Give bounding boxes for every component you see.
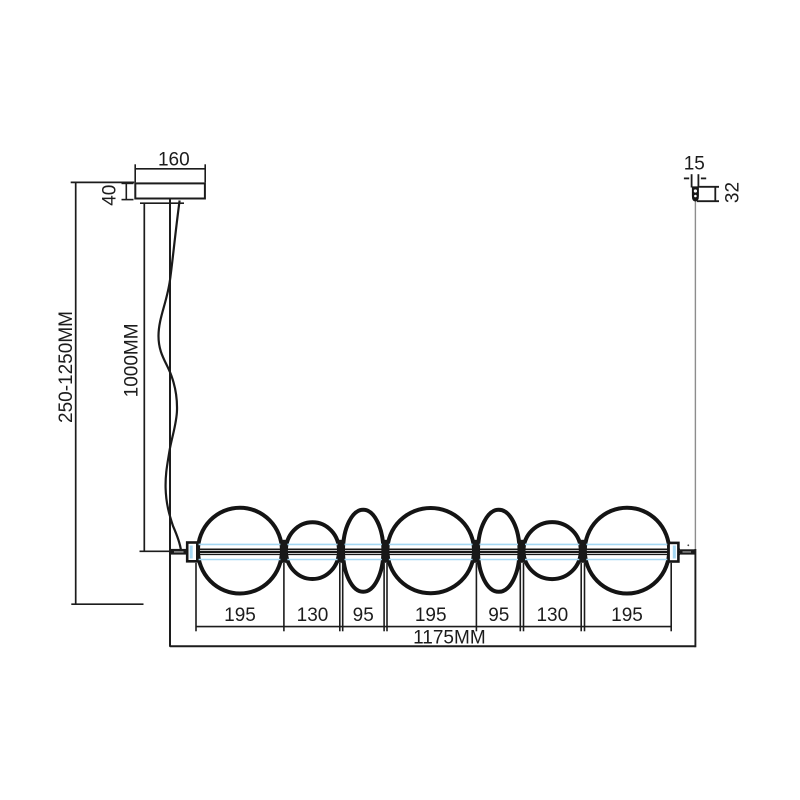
- svg-text:40: 40: [99, 185, 120, 206]
- svg-text:250-1250MM: 250-1250MM: [56, 311, 77, 423]
- svg-text:1175MM: 1175MM: [413, 627, 486, 648]
- svg-text:1000MM: 1000MM: [121, 323, 142, 397]
- svg-text:195: 195: [611, 605, 643, 626]
- svg-text:195: 195: [224, 605, 256, 626]
- svg-text:160: 160: [158, 149, 190, 170]
- svg-text:195: 195: [415, 605, 447, 626]
- svg-text:32: 32: [722, 182, 743, 203]
- svg-text:130: 130: [536, 605, 568, 626]
- svg-text:130: 130: [297, 605, 329, 626]
- svg-text:95: 95: [353, 605, 374, 626]
- svg-text:95: 95: [488, 605, 509, 626]
- svg-text:15: 15: [684, 153, 705, 174]
